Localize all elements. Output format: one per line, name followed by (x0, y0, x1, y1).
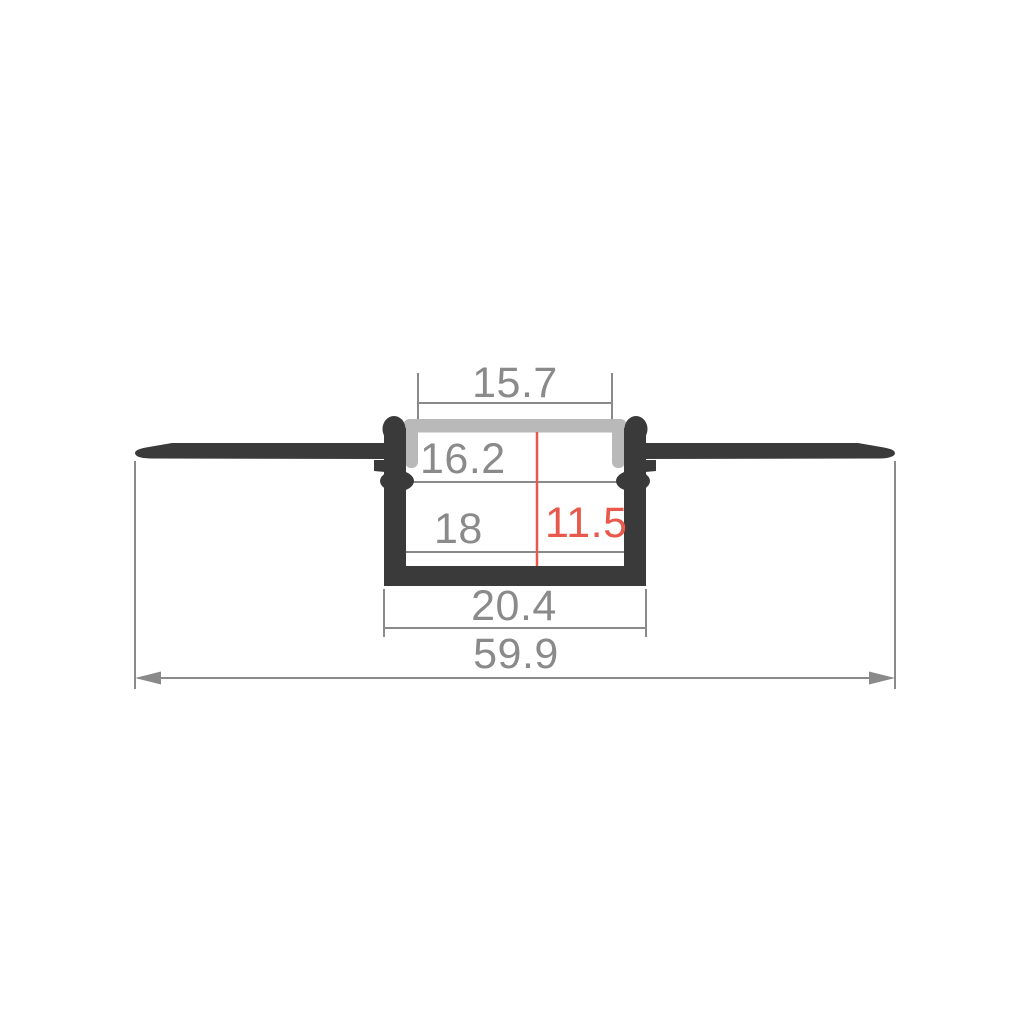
dim-label-body-outer-width: 20.4 (471, 582, 557, 630)
dimension-recess-top-width: 16.2 (406, 435, 624, 483)
profile-body (135, 416, 895, 586)
diffuser-cover (403, 419, 627, 433)
arrowhead-right-icon (869, 672, 895, 685)
right-clip-knob (625, 416, 648, 442)
left-clip-bump (380, 471, 414, 492)
left-clip-knob (383, 416, 406, 442)
cross-section-drawing: 59.9 20.4 15.7 16.2 18 (0, 0, 1024, 1024)
left-wall (384, 428, 406, 586)
drawing-canvas: 59.9 20.4 15.7 16.2 18 (0, 0, 1024, 1024)
dim-label-inner-width: 18 (434, 505, 483, 553)
right-wing (640, 443, 895, 459)
bottom-base (384, 566, 646, 586)
arrowhead-left-icon (135, 672, 161, 685)
dim-label-overall-width: 59.9 (473, 630, 559, 678)
left-wing (135, 443, 390, 459)
right-clip-bump (616, 471, 650, 492)
dim-label-recess-top-width: 16.2 (420, 435, 506, 483)
dimension-diffuser-opening-width: 15.7 (418, 359, 612, 419)
dim-label-inner-height: 11.5 (545, 499, 628, 547)
dim-label-diffuser-opening-width: 15.7 (472, 359, 558, 407)
dimension-body-outer-width: 20.4 (384, 582, 646, 637)
diffuser-left-leg (405, 426, 418, 468)
diffuser-right-leg (612, 426, 625, 468)
